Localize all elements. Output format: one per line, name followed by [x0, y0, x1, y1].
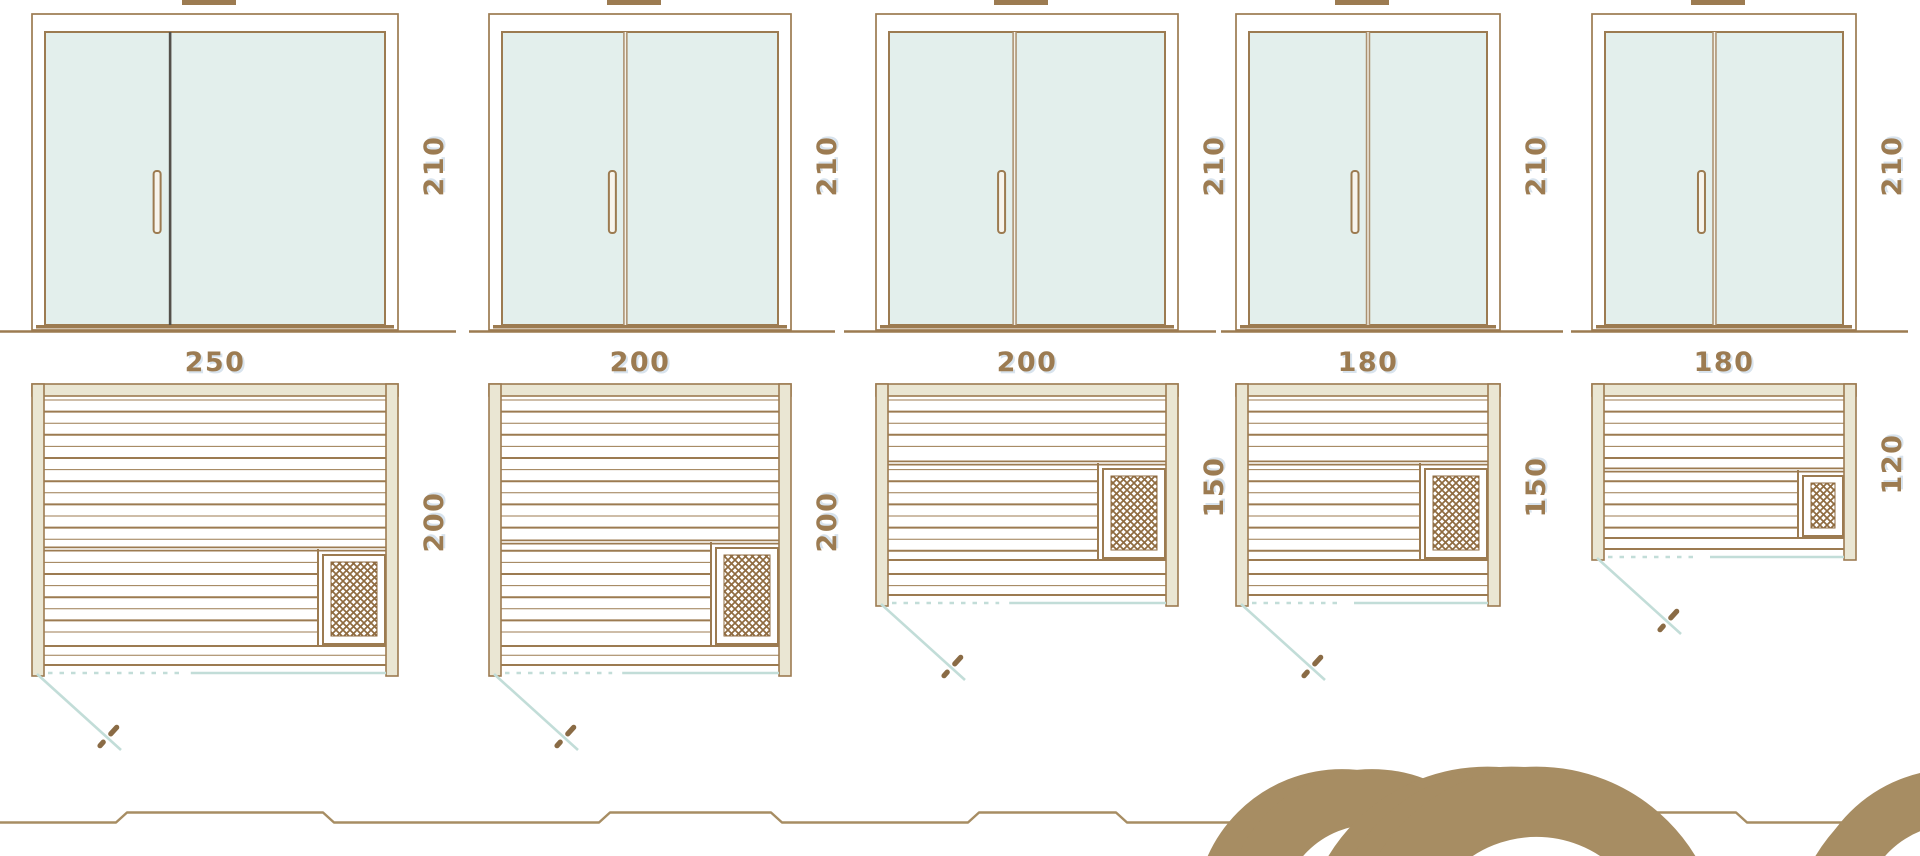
sauna-elevation	[1571, 0, 1908, 332]
plan-right-wall	[386, 384, 398, 676]
plan-depth-dimension-1: 200	[419, 462, 449, 582]
sauna-elevation	[844, 0, 1216, 332]
heater-hatch-icon	[1811, 483, 1835, 528]
door-handle-icon	[1698, 171, 1705, 233]
plan-back-wall	[1236, 384, 1500, 396]
plan-back-wall	[876, 384, 1178, 396]
plan-left-wall	[489, 384, 501, 676]
sauna-floor-plan	[489, 384, 791, 750]
plan-left-wall	[1592, 384, 1604, 560]
glass-front-panel	[889, 32, 1165, 325]
door-sill	[493, 325, 787, 329]
elevation-height-dimension-3: 210	[1199, 106, 1229, 226]
plan-right-wall	[779, 384, 791, 676]
door-handle-icon	[998, 171, 1005, 233]
door-sill	[36, 325, 394, 329]
plan-left-wall	[32, 384, 44, 676]
door-swing-line	[1241, 604, 1325, 680]
glass-front-panel	[502, 32, 778, 325]
plan-width-dimension-5: 180	[1664, 347, 1784, 377]
roof-vent-icon	[182, 0, 236, 5]
plan-left-wall	[876, 384, 888, 606]
sauna-floor-plan	[32, 384, 398, 750]
plan-left-wall	[1236, 384, 1248, 606]
plan-width-dimension-3: 200	[967, 347, 1087, 377]
sauna-elevation	[0, 0, 456, 332]
sauna-diagram: 250 200 200 180 180 210 210 210 210 210 …	[0, 0, 1920, 856]
elevation-height-dimension-2: 210	[812, 106, 842, 226]
roof-vent-icon	[607, 0, 661, 5]
sauna-floor-plan	[1236, 384, 1500, 680]
glass-front-panel	[45, 32, 385, 325]
sauna-elevation	[1221, 0, 1563, 332]
door-handle-icon	[154, 171, 161, 233]
roof-vent-icon	[1691, 0, 1745, 5]
heater-hatch-icon	[1111, 476, 1157, 550]
glass-front-panel	[1605, 32, 1843, 325]
roof-vent-icon	[994, 0, 1048, 5]
heater-hatch-icon	[1433, 476, 1479, 550]
plan-depth-dimension-3: 150	[1199, 427, 1229, 547]
sauna-floor-plan	[1592, 384, 1856, 634]
door-swing-line	[37, 674, 121, 750]
plan-right-wall	[1166, 384, 1178, 606]
roof-vent-icon	[1335, 0, 1389, 5]
person-standing-icon	[1819, 797, 1920, 856]
door-swing-line	[881, 604, 965, 680]
door-sill	[1596, 325, 1852, 329]
plan-back-wall	[1592, 384, 1856, 396]
plan-width-dimension-2: 200	[580, 347, 700, 377]
door-sill	[880, 325, 1174, 329]
plan-depth-dimension-5: 120	[1877, 404, 1907, 524]
sauna-column-5	[1571, 0, 1920, 856]
plan-right-wall	[1844, 384, 1856, 560]
door-swing-line	[1597, 558, 1681, 634]
door-handle-icon	[1352, 171, 1359, 233]
heater-hatch-icon	[724, 555, 770, 636]
elevation-height-dimension-1: 210	[419, 106, 449, 226]
plan-depth-dimension-2: 200	[812, 462, 842, 582]
door-sill	[1240, 325, 1496, 329]
door-swing-line	[494, 674, 578, 750]
elevation-height-dimension-4: 210	[1521, 106, 1551, 226]
heater-hatch-icon	[331, 562, 377, 636]
elevation-height-dimension-5: 210	[1877, 106, 1907, 226]
plan-width-dimension-1: 250	[155, 347, 275, 377]
plan-back-wall	[32, 384, 398, 396]
plan-right-wall	[1488, 384, 1500, 606]
plan-width-dimension-4: 180	[1308, 347, 1428, 377]
door-handle-icon	[609, 171, 616, 233]
sauna-diagram-canvas	[0, 0, 1920, 856]
capacity-group	[0, 797, 1798, 856]
sauna-elevation	[469, 0, 835, 332]
plan-back-wall	[489, 384, 791, 396]
sauna-floor-plan	[876, 384, 1178, 680]
plan-depth-dimension-4: 150	[1521, 427, 1551, 547]
